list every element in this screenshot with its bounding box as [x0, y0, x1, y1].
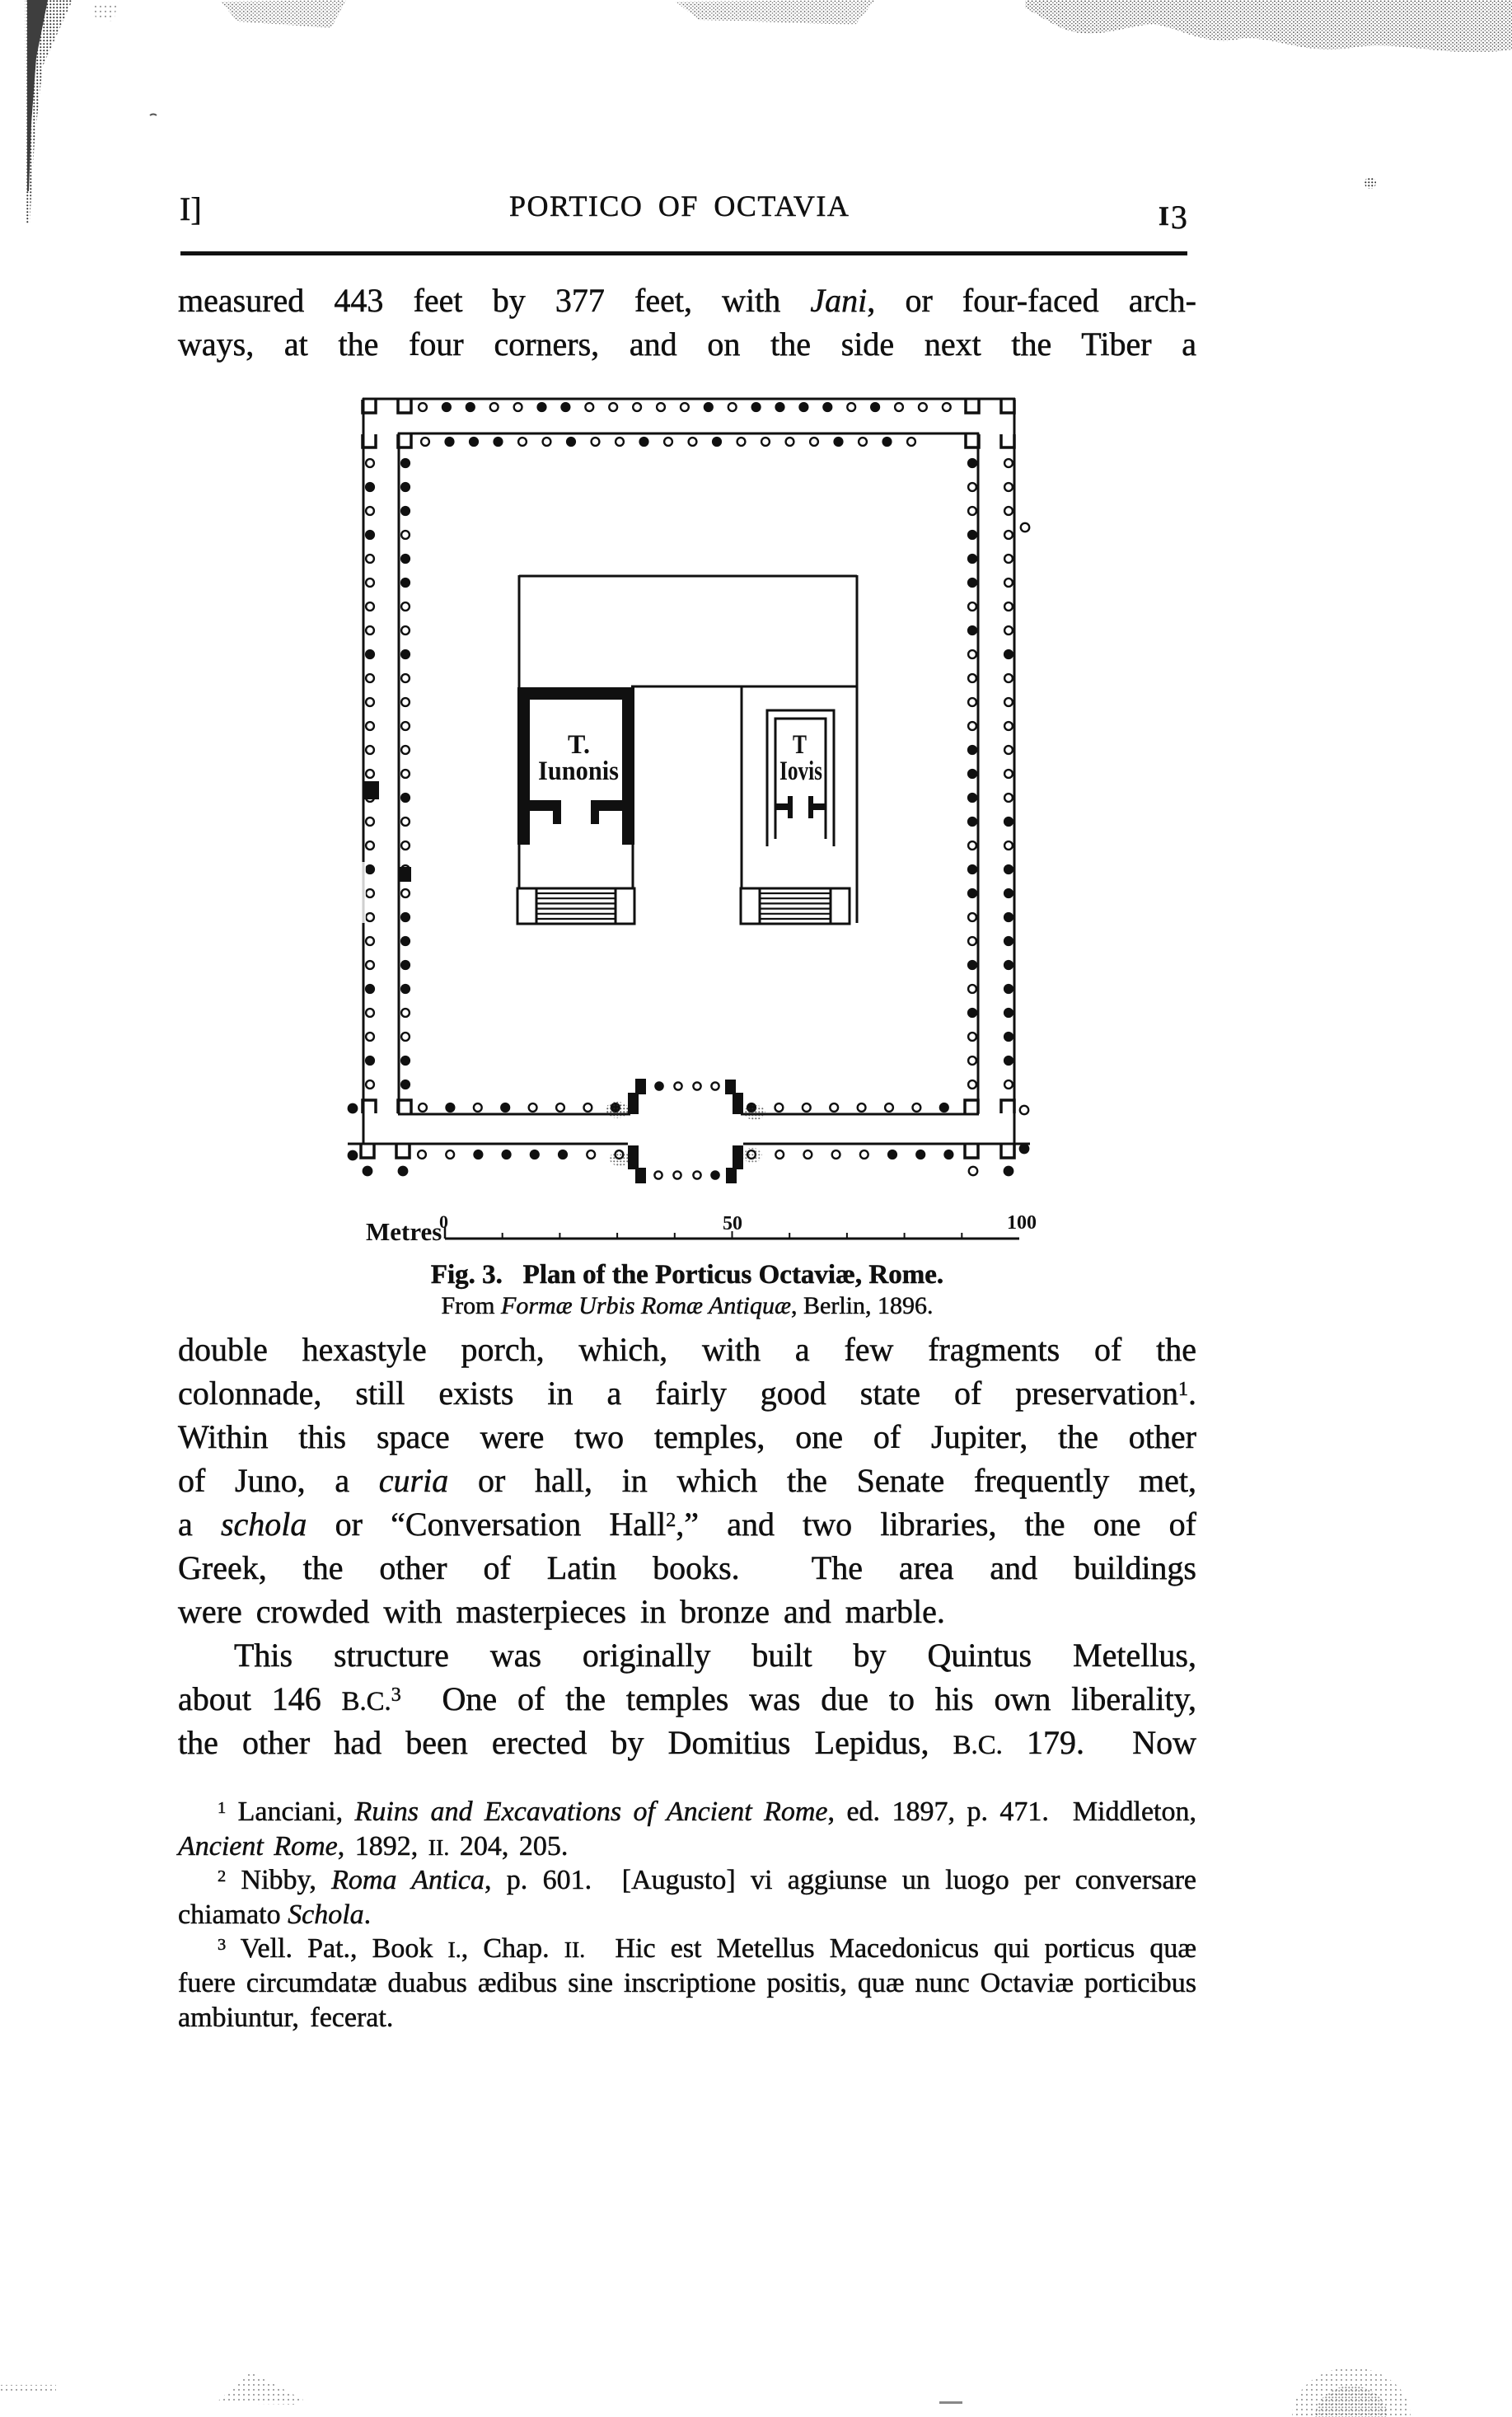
svg-text:T: T: [793, 730, 807, 760]
svg-text:0: 0: [439, 1211, 448, 1232]
svg-text:T.: T.: [568, 730, 590, 760]
svg-text:Iovis: Iovis: [779, 756, 822, 786]
svg-text:Iunonis: Iunonis: [538, 756, 619, 786]
svg-text:50: 50: [723, 1213, 742, 1234]
svg-text:100: 100: [1007, 1212, 1037, 1234]
svg-text:Metres: Metres: [366, 1217, 442, 1246]
